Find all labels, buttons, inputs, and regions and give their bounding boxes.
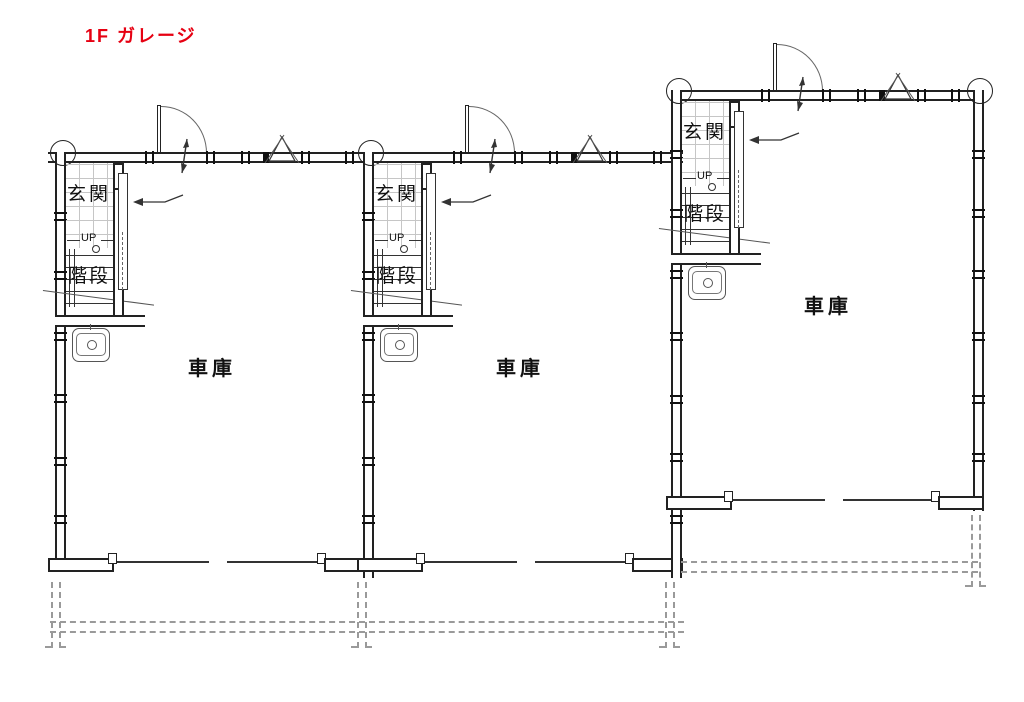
garage-unit-2: 玄関 UP 階段 車庫 — [363, 152, 676, 572]
window-tick — [145, 151, 154, 164]
entrance-bottom-wall — [55, 315, 145, 327]
garage-label: 車庫 — [188, 352, 236, 381]
wall-tick — [670, 515, 683, 524]
wall-tick — [972, 332, 985, 341]
sliding-door-panel — [734, 111, 744, 228]
sink-faucet — [398, 324, 399, 330]
sink-drain — [703, 278, 713, 288]
sink-drain — [395, 340, 405, 350]
wall-tick — [362, 394, 375, 403]
garage-unit-1: 玄関 UP 階段 車庫 — [55, 152, 368, 572]
wall-tick — [54, 394, 67, 403]
overhang-corner-mark — [59, 646, 66, 648]
window-tick — [857, 89, 866, 102]
wall-tick — [670, 453, 683, 462]
garage-opening-line — [535, 561, 629, 563]
wall-tick — [670, 270, 683, 279]
window-tick — [345, 151, 354, 164]
wall-top — [363, 152, 683, 163]
sliding-door-dash — [738, 170, 739, 228]
garage-label: 車庫 — [804, 290, 852, 319]
wall-tick — [54, 515, 67, 524]
wall-tick — [362, 457, 375, 466]
overhang-dashed-line — [979, 515, 981, 587]
wall-tick — [54, 332, 67, 341]
entrance-label: 玄関 — [67, 179, 111, 206]
overhang-corner-mark — [45, 646, 52, 648]
up-line — [683, 178, 696, 179]
slide-direction-arrow-icon — [745, 130, 801, 146]
window-tick — [301, 151, 310, 164]
sliding-door-dash — [122, 232, 123, 290]
overhang-dashed-line — [681, 561, 978, 563]
floor-plan: 1F ガレージ 玄関 UP — [0, 0, 1024, 702]
entrance-bottom-wall — [363, 315, 453, 327]
slide-direction-arrow-icon — [437, 192, 493, 208]
window-tick — [951, 89, 960, 102]
window-tick — [822, 89, 831, 102]
wall-tick — [362, 515, 375, 524]
overhang-dashed-line — [665, 582, 667, 648]
shutter-triangle-icon — [881, 73, 915, 101]
window-tick — [653, 151, 662, 164]
wall-tick — [972, 270, 985, 279]
overhang-dashed-line — [681, 571, 978, 573]
garage-opening-line — [843, 499, 935, 501]
garage-unit-3: 玄関 UP 階段 車庫 — [671, 90, 984, 510]
overhang-dashed-line — [59, 582, 61, 648]
entry-direction-arrow-icon — [484, 134, 500, 178]
overhang-dashed-line — [50, 631, 684, 633]
entrance-bottom-wall — [671, 253, 761, 265]
stairs-up-label: UP — [389, 232, 404, 244]
bottom-wall-segment — [666, 496, 732, 510]
overhang-dashed-line — [365, 582, 367, 648]
window-tick — [241, 151, 250, 164]
sliding-door-dash — [430, 232, 431, 290]
overhang-corner-mark — [659, 646, 666, 648]
sink-icon — [72, 328, 110, 362]
sink-icon — [380, 328, 418, 362]
sink-icon — [688, 266, 726, 300]
window-tick — [609, 151, 618, 164]
garage-door-post — [416, 553, 425, 564]
entrance-label: 玄関 — [683, 117, 727, 144]
bottom-wall-segment — [48, 558, 114, 572]
garage-door-post — [724, 491, 733, 502]
window-tick — [453, 151, 462, 164]
garage-opening-line — [733, 499, 825, 501]
sink-drain — [87, 340, 97, 350]
sliding-door-panel — [118, 173, 128, 290]
overhang-dashed-line — [673, 582, 675, 648]
overhang-dashed-line — [50, 621, 684, 623]
up-line — [67, 240, 80, 241]
garage-opening-line — [227, 561, 321, 563]
floor-title: 1F ガレージ — [85, 22, 197, 48]
wall-tick — [972, 453, 985, 462]
sink-faucet — [90, 324, 91, 330]
stairs-up-label: UP — [697, 170, 712, 182]
slide-direction-arrow-icon — [129, 192, 185, 208]
stairs-up-label: UP — [81, 232, 96, 244]
garage-label: 車庫 — [496, 352, 544, 381]
wall-tick — [54, 457, 67, 466]
overhang-dashed-line — [971, 515, 973, 587]
stairs-label: 階段 — [376, 261, 418, 288]
window-tick — [549, 151, 558, 164]
sliding-door-panel — [426, 173, 436, 290]
entry-direction-arrow-icon — [792, 72, 808, 116]
entrance-label: 玄関 — [375, 179, 419, 206]
corner-column-circle — [967, 78, 993, 104]
overhang-corner-mark — [673, 646, 680, 648]
window-tick — [514, 151, 523, 164]
wall-tick — [362, 332, 375, 341]
stairs-label: 階段 — [684, 199, 726, 226]
overhang-corner-mark — [979, 585, 986, 587]
garage-door-post — [108, 553, 117, 564]
overhang-corner-mark — [365, 646, 372, 648]
overhang-corner-mark — [965, 585, 972, 587]
window-tick — [917, 89, 926, 102]
window-tick — [761, 89, 770, 102]
wall-tick — [670, 395, 683, 404]
stairs-label: 階段 — [68, 261, 110, 288]
overhang-dashed-line — [51, 582, 53, 648]
wall-tick — [670, 332, 683, 341]
garage-opening-line — [425, 561, 517, 563]
wall-tick — [972, 395, 985, 404]
garage-opening-line — [117, 561, 209, 563]
wall-tick — [972, 209, 985, 218]
wall-tick — [972, 150, 985, 159]
overhang-corner-mark — [351, 646, 358, 648]
window-tick — [206, 151, 215, 164]
bottom-wall-segment — [357, 558, 423, 572]
overhang-dashed-line — [357, 582, 359, 648]
shutter-triangle-icon — [265, 135, 299, 163]
entry-direction-arrow-icon — [176, 134, 192, 178]
bottom-wall-segment — [938, 496, 984, 510]
up-line — [375, 240, 388, 241]
shutter-triangle-icon — [573, 135, 607, 163]
sink-faucet — [706, 262, 707, 268]
